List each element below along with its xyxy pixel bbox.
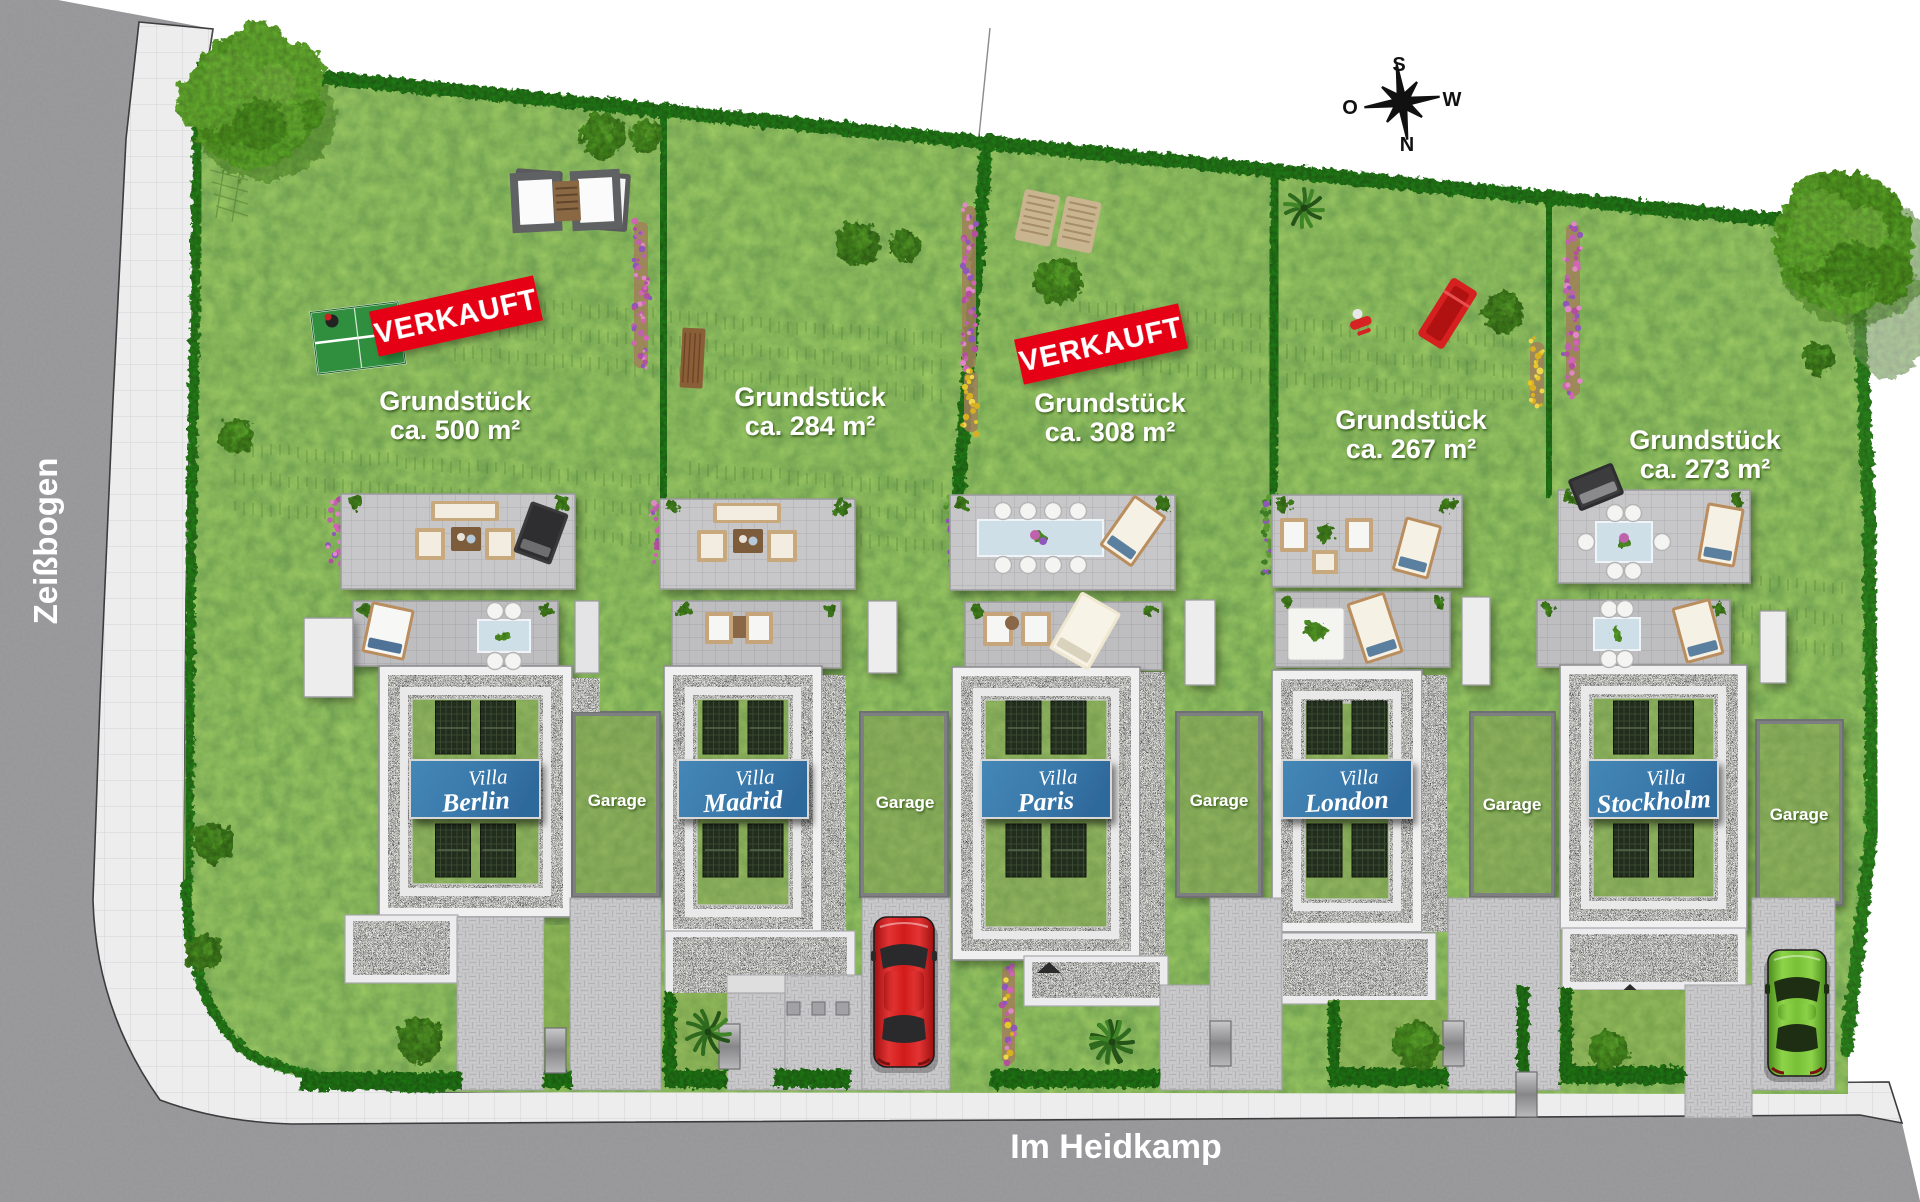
svg-text:Garage: Garage — [876, 793, 935, 812]
svg-text:Grundstück: Grundstück — [1629, 425, 1782, 455]
svg-text:ca. 267 m²: ca. 267 m² — [1346, 434, 1477, 464]
svg-text:ca. 284 m²: ca. 284 m² — [745, 411, 876, 441]
svg-text:Garage: Garage — [1483, 795, 1542, 814]
svg-text:Zeißbogen: Zeißbogen — [27, 458, 64, 625]
svg-text:London: London — [1303, 785, 1389, 818]
svg-text:Berlin: Berlin — [440, 785, 510, 818]
svg-text:N: N — [1400, 134, 1414, 156]
svg-text:ca. 308 m²: ca. 308 m² — [1045, 417, 1176, 447]
svg-text:Grundstück: Grundstück — [1335, 405, 1488, 435]
svg-text:W: W — [1443, 89, 1462, 111]
svg-text:Stockholm: Stockholm — [1596, 784, 1712, 819]
svg-text:Paris: Paris — [1016, 786, 1075, 818]
svg-text:Im Heidkamp: Im Heidkamp — [1010, 1128, 1222, 1166]
svg-text:Garage: Garage — [588, 791, 647, 810]
svg-text:Grundstück: Grundstück — [734, 382, 887, 412]
svg-text:Grundstück: Grundstück — [379, 386, 532, 416]
svg-text:Garage: Garage — [1770, 805, 1829, 824]
svg-text:Grundstück: Grundstück — [1034, 388, 1187, 418]
svg-text:ca. 500 m²: ca. 500 m² — [390, 415, 521, 445]
svg-text:Garage: Garage — [1190, 791, 1249, 810]
svg-text:O: O — [1342, 97, 1358, 119]
svg-text:S: S — [1392, 54, 1405, 76]
svg-text:ca. 273 m²: ca. 273 m² — [1640, 454, 1771, 484]
svg-text:Madrid: Madrid — [701, 785, 784, 818]
